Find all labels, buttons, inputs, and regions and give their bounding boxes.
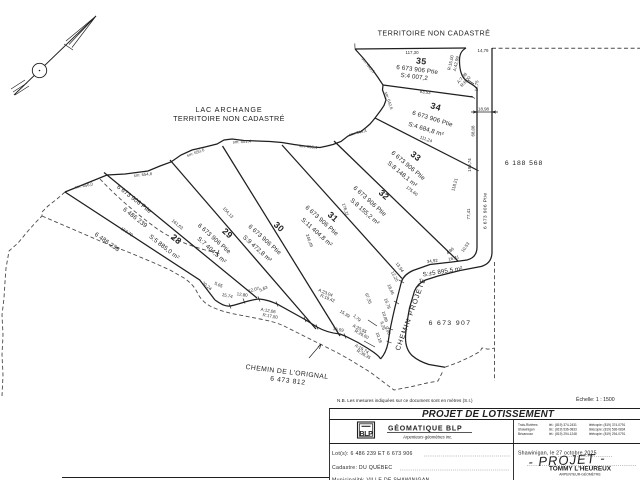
svg-text:TOMMY L'HEUREUX: TOMMY L'HEUREUX	[549, 466, 612, 473]
svg-text:Cadastre: DU QUÉBEC: Cadastre: DU QUÉBEC	[332, 464, 392, 471]
svg-text:Échelle: 1 : 1500: Échelle: 1 : 1500	[576, 396, 615, 403]
svg-text:Arpenteurs-géomètres inc.: Arpenteurs-géomètres inc.	[402, 435, 452, 440]
svg-text:N.B. Les mesures indiquées su: N.B. Les mesures indiquées sur ce docume…	[337, 398, 473, 403]
svg-text:télécopie: (819) 374-0791: télécopie: (819) 374-0791	[589, 423, 626, 427]
svg-text:199,74: 199,74	[467, 158, 472, 172]
svg-text:6 673 907: 6 673 907	[429, 320, 472, 327]
svg-text:tél.: (819) 536-0833: tél.: (819) 536-0833	[549, 428, 577, 432]
svg-text:télécopie: (819) 294-0791: télécopie: (819) 294-0791	[589, 432, 626, 436]
svg-text:GÉOMATIQUE BLP: GÉOMATIQUE BLP	[388, 424, 462, 433]
svg-text:TERRITOIRE NON CADASTRÉ: TERRITOIRE NON CADASTRÉ	[173, 114, 285, 123]
svg-text:14,75: 14,75	[474, 80, 480, 92]
svg-text:77,41: 77,41	[466, 208, 471, 220]
svg-text:TERRITOIRE NON CADASTRÉ: TERRITOIRE NON CADASTRÉ	[378, 29, 491, 38]
svg-text:Lot(s): 6 486 239 ET 6 673 90: Lot(s): 6 486 239 ET 6 673 906	[332, 451, 413, 457]
svg-text:télécopie: (819) 536-0834: télécopie: (819) 536-0834	[589, 428, 626, 432]
svg-text:BLP: BLP	[359, 429, 373, 438]
svg-text:Trois-Rivières: Trois-Rivières	[518, 423, 538, 427]
svg-text:35: 35	[415, 55, 427, 66]
svg-text:6 188 568: 6 188 568	[505, 160, 543, 167]
svg-text:sm: 651,4: sm: 651,4	[233, 138, 252, 144]
svg-text:Shawinigan: Shawinigan	[518, 428, 535, 432]
svg-text:LAC ARCHANGE: LAC ARCHANGE	[195, 105, 262, 114]
svg-text:ARPENTEUR-GÉOMÈTRE: ARPENTEUR-GÉOMÈTRE	[559, 472, 601, 477]
svg-text:68,08: 68,08	[471, 125, 476, 137]
svg-text:117,30: 117,30	[405, 50, 419, 55]
svg-text:PROJET DE LOTISSEMENT: PROJET DE LOTISSEMENT	[422, 409, 555, 420]
svg-text:tél.: (819) 374-2431: tél.: (819) 374-2431	[549, 423, 577, 427]
svg-text:6 673 906 Ptie: 6 673 906 Ptie	[483, 193, 489, 229]
svg-text:Bécancour: Bécancour	[518, 432, 534, 436]
svg-text:18,98: 18,98	[478, 107, 490, 112]
svg-text:14,79: 14,79	[478, 48, 490, 53]
svg-text:tél.: (819) 294-1248: tél.: (819) 294-1248	[549, 432, 577, 436]
